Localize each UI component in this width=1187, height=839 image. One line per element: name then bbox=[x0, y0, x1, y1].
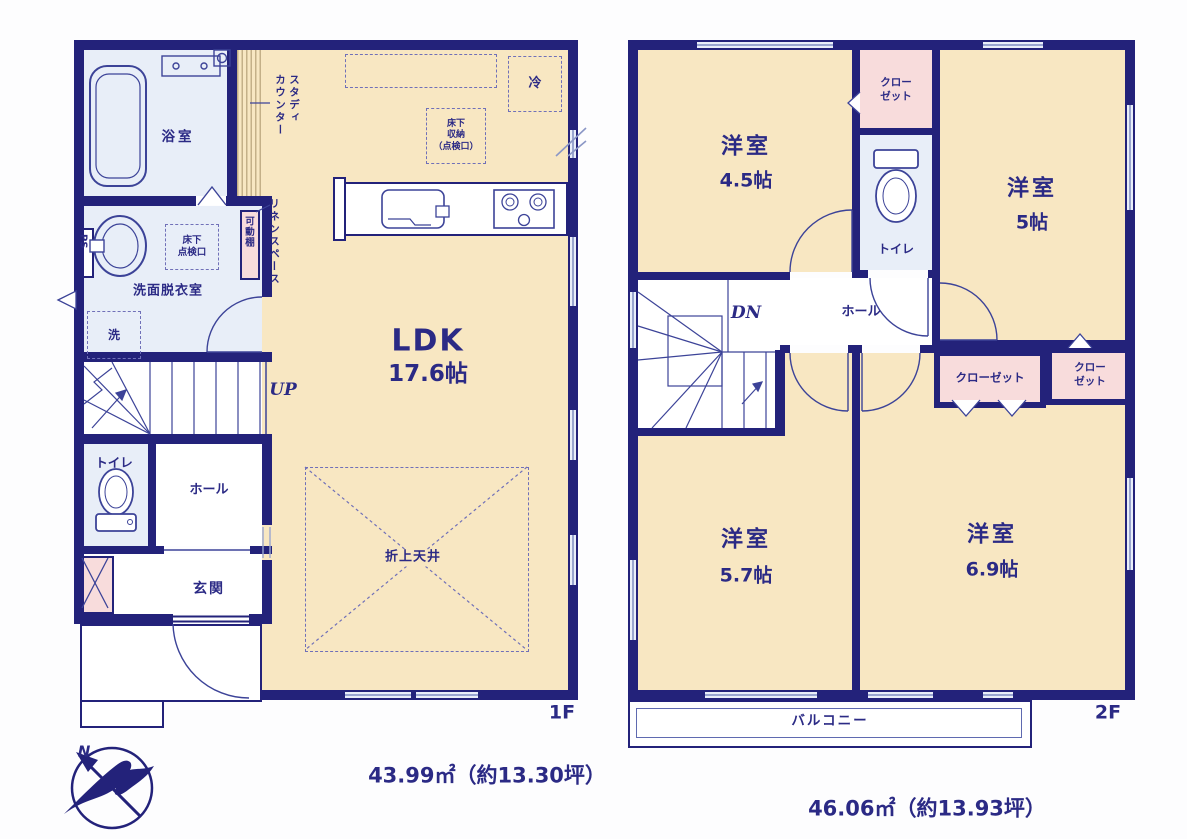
study-counter-line2: カウンター bbox=[274, 74, 285, 137]
door-arc-room5 bbox=[940, 283, 997, 340]
toilet-icon-1f bbox=[96, 469, 136, 531]
stairs-down-label: DN bbox=[731, 302, 761, 324]
hall-1f-label: ホール bbox=[189, 483, 228, 500]
closet-narrow-line2: ゼット bbox=[1074, 375, 1106, 387]
entrance-label: 玄関 bbox=[193, 580, 225, 598]
ldk-size-label: 17.6帖 bbox=[388, 360, 468, 390]
washbasin-icon bbox=[90, 216, 146, 276]
floor2-area-text: 46.06㎡（約13.93坪） bbox=[808, 795, 1046, 822]
closet-narrow-line1: クロー bbox=[1074, 361, 1106, 373]
room45-size-label: 4.5帖 bbox=[720, 169, 773, 194]
floor1-area-text: 43.99㎡（約13.30坪） bbox=[368, 762, 606, 789]
ps-label: PS bbox=[77, 234, 88, 249]
room45-name-label: 洋室 bbox=[721, 134, 771, 163]
floor2-tag: 2F bbox=[1095, 701, 1121, 726]
closet-narrow-label: クロー ゼット bbox=[1062, 361, 1118, 388]
closet-wide-label: クローゼット bbox=[956, 371, 1025, 386]
toilet-icon-2f bbox=[874, 150, 918, 222]
door-arc-room57 bbox=[790, 353, 848, 411]
stairs-up-label: UP bbox=[269, 379, 297, 401]
closet-top-label: クロー ゼット bbox=[866, 76, 926, 103]
closet-top-line1: クロー bbox=[880, 76, 912, 88]
kitchen-stove-icon bbox=[494, 190, 554, 228]
washroom-door-arc bbox=[207, 297, 262, 352]
coffered-ceiling-label: 折上天井 bbox=[382, 550, 444, 567]
study-counter-label: スタディ カウンター bbox=[274, 74, 299, 137]
study-counter-line1: スタディ bbox=[288, 74, 299, 137]
room57-size-label: 5.7帖 bbox=[720, 564, 773, 589]
balcony-label: バルコニー bbox=[791, 713, 868, 731]
floorplan-canvas: 床下 点検口 洗 冷 床下 収納 （点検口） bbox=[0, 0, 1187, 839]
kitchen-sink-icon bbox=[382, 190, 449, 228]
leader-lines bbox=[250, 103, 270, 212]
toilet-1f-label: トイレ bbox=[95, 455, 133, 471]
compass-north-label: N bbox=[78, 742, 91, 762]
room69-name-label: 洋室 bbox=[967, 522, 1017, 551]
hall-ldk-door bbox=[263, 527, 270, 558]
room69-size-label: 6.9帖 bbox=[966, 558, 1019, 583]
closet-top-line2: ゼット bbox=[880, 90, 912, 102]
shoe-cabinet-x bbox=[82, 558, 108, 608]
hall-2f-label: ホール bbox=[841, 305, 880, 322]
stairs-1f-treads bbox=[84, 362, 266, 434]
toilet-2f-label: トイレ bbox=[878, 242, 914, 258]
movable-shelf-label: 可動棚 bbox=[243, 216, 253, 248]
room5-size-label: 5帖 bbox=[1016, 211, 1048, 236]
vent-mark bbox=[556, 128, 586, 156]
linework-layer bbox=[0, 0, 1187, 839]
left-vent-mark bbox=[58, 291, 76, 309]
bathtub-icon bbox=[90, 66, 146, 186]
entrance-door bbox=[173, 617, 249, 699]
washroom-label: 洗面脱衣室 bbox=[133, 284, 203, 301]
room5-name-label: 洋室 bbox=[1007, 176, 1057, 205]
door-arc-room69 bbox=[862, 353, 920, 411]
bath-fixture-icon bbox=[162, 50, 230, 76]
bath-door-mark bbox=[198, 187, 226, 205]
ldk-name-label: LDK bbox=[391, 322, 464, 361]
door-arc-room45 bbox=[790, 210, 852, 272]
room57-name-label: 洋室 bbox=[721, 527, 771, 556]
bath-label: 浴室 bbox=[162, 129, 195, 147]
floor1-tag: 1F bbox=[549, 701, 575, 726]
linen-space-label: リネンスペース bbox=[268, 198, 279, 286]
